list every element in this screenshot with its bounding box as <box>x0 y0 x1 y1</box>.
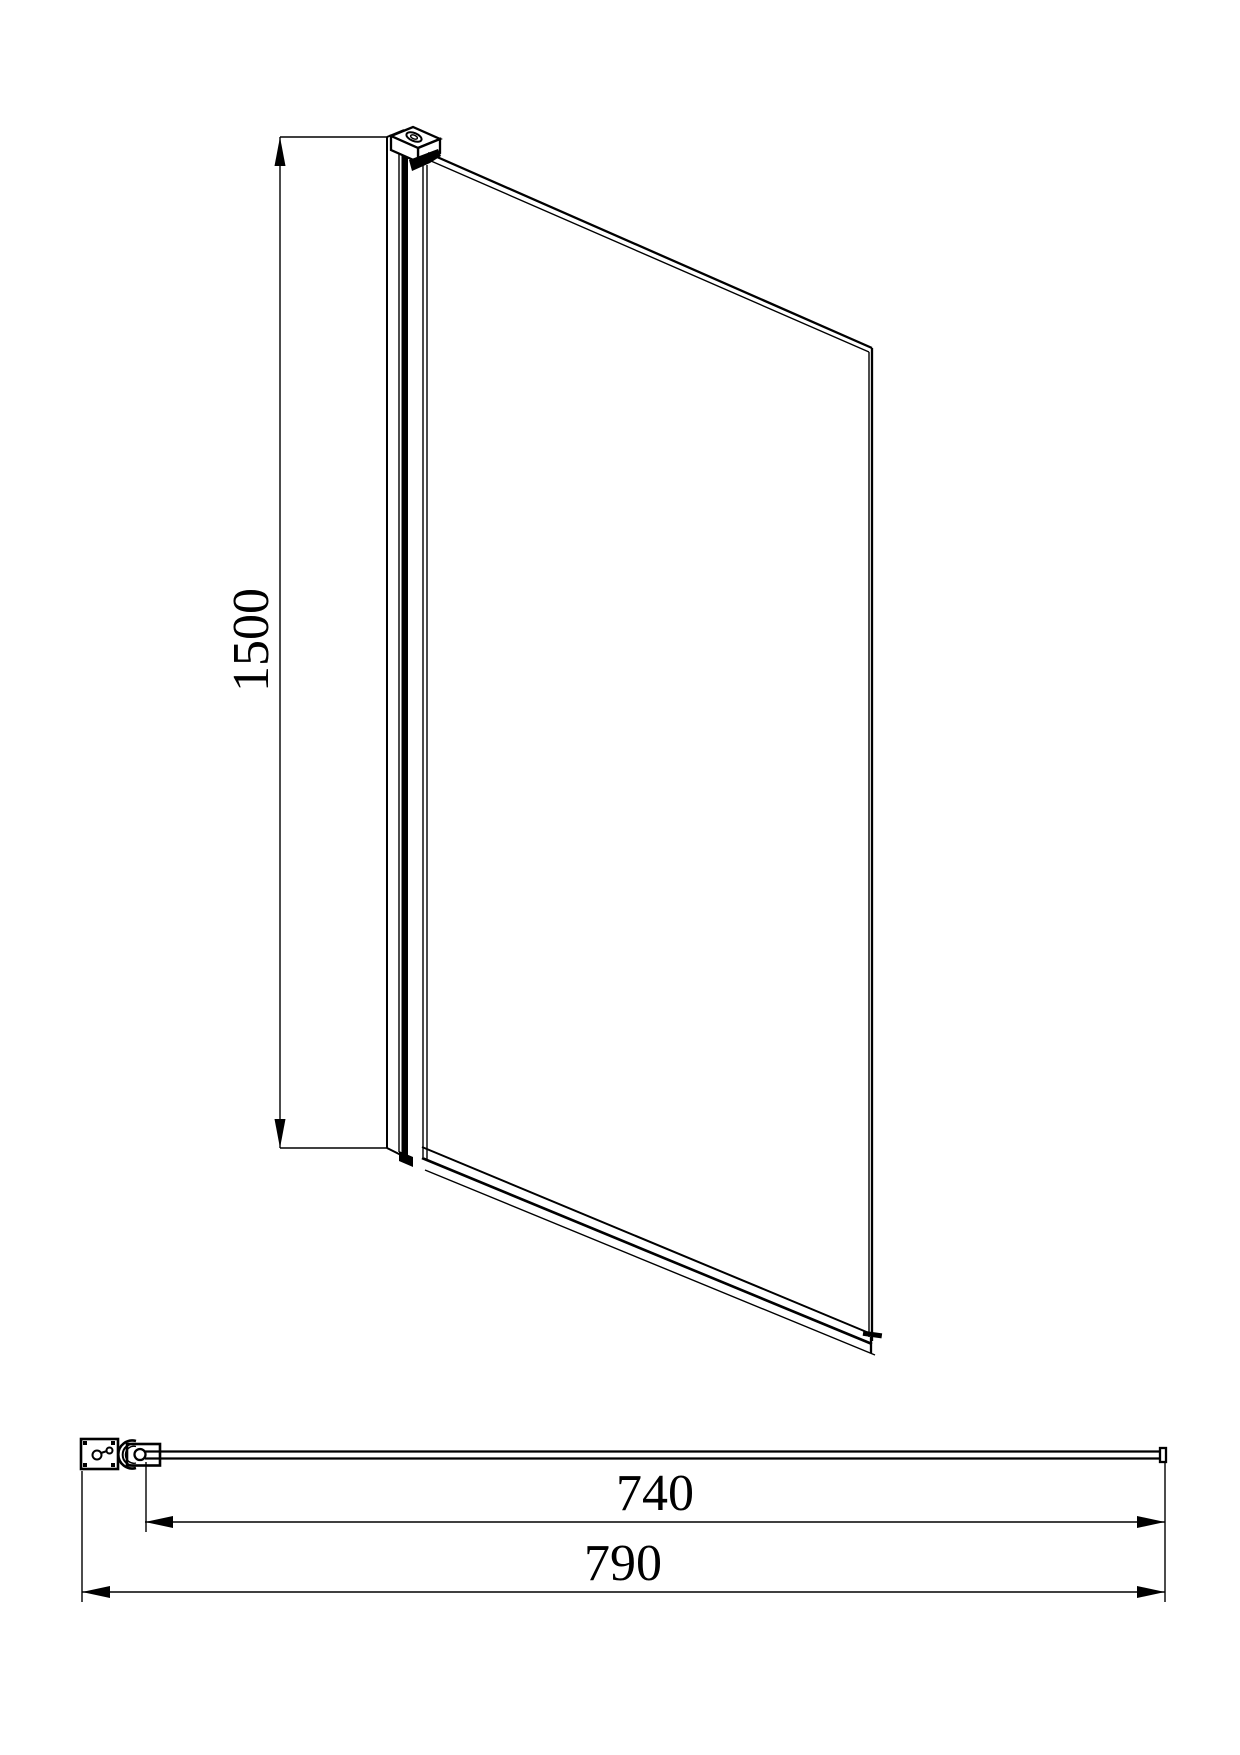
glass-top-edge-outer <box>428 153 872 348</box>
technical-drawing-page: 1500 <box>0 0 1240 1755</box>
arrow-right-icon <box>1137 1516 1165 1528</box>
glass-width-label: 740 <box>616 1465 694 1522</box>
glass-edge-end-cap <box>1160 1448 1166 1462</box>
wall-profile-section <box>81 1439 118 1469</box>
arrow-left-icon <box>82 1586 110 1598</box>
arrow-right-icon <box>1137 1586 1165 1598</box>
arrow-left-icon <box>145 1516 173 1528</box>
corner-screw-boss <box>83 1463 87 1467</box>
bottom-seal-mid-line <box>422 1158 872 1344</box>
hinge-clamp-section <box>118 1441 160 1469</box>
corner-screw-boss <box>111 1441 115 1445</box>
wall-profile-channel <box>402 146 409 1159</box>
plan-view: 740 790 <box>81 1439 1166 1602</box>
corner-screw-boss <box>83 1441 87 1445</box>
overall-width-label: 790 <box>584 1535 662 1592</box>
bottom-seal-lower-line <box>425 1170 875 1355</box>
glass-panel-edge <box>145 1448 1166 1462</box>
shower-screen-drawing: 1500 <box>0 0 1240 1755</box>
wall-profile <box>387 130 413 1167</box>
height-dimension: 1500 <box>223 137 388 1148</box>
glass-top-edge-inner <box>431 161 869 352</box>
corner-screw-boss <box>111 1463 115 1467</box>
glass-panel <box>422 153 882 1355</box>
front-view: 1500 <box>223 127 882 1355</box>
arrow-down-icon <box>275 1119 286 1148</box>
height-dimension-label: 1500 <box>223 588 280 692</box>
pivot-pin-icon <box>135 1449 146 1460</box>
glass-width-dimension: 740 <box>145 1462 1165 1532</box>
bottom-seal-top-line <box>422 1147 869 1333</box>
arrow-up-icon <box>275 137 286 166</box>
